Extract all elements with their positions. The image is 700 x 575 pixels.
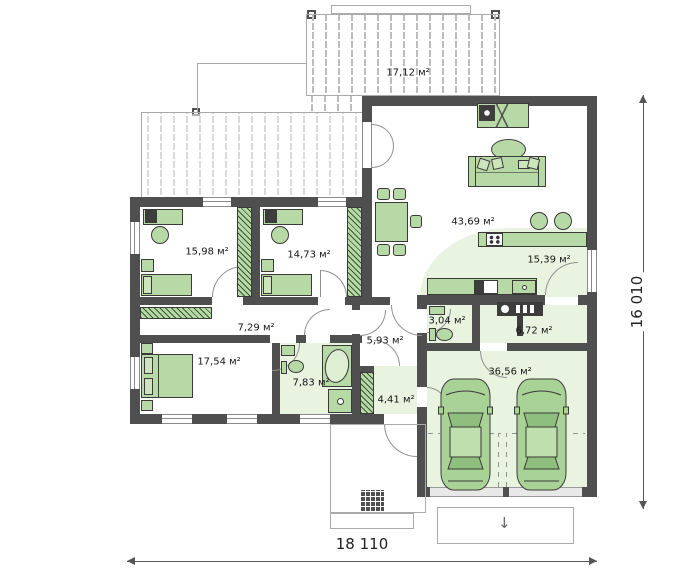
wall [362,207,372,297]
door-swing [372,124,394,146]
door-swing [320,270,347,297]
terrace-edge-line [197,63,198,113]
sofa-pillow [491,157,504,170]
sink [429,306,445,315]
chair [377,188,390,200]
window [130,222,140,254]
pillow [143,276,152,294]
door-swing [391,305,422,336]
porch-step [330,513,414,529]
parking-dash [498,433,499,487]
chair [410,215,422,228]
sofa-seat-line [476,172,538,173]
wall [140,335,270,343]
wardrobe [360,372,374,414]
wall [345,297,390,305]
terrace-bridge-decking [306,96,362,113]
terrace-top-decking [307,15,499,95]
pillow [144,378,153,395]
room-label-entry: 4,41 м² [378,395,415,406]
bed-line [158,355,159,397]
toilet-bowl [288,360,304,373]
bar-stool [530,212,548,230]
window [318,197,346,207]
window [162,414,192,424]
wall [472,305,480,343]
toilet-tank [429,328,436,341]
chair [377,244,390,256]
bar-stool [554,212,572,230]
faucet-dot [522,285,527,290]
window [130,357,140,389]
door-swing [304,309,330,335]
door-swing [360,310,386,336]
wardrobe [140,307,212,319]
wardrobe [237,207,252,297]
dimension-arrow [639,501,647,509]
terrace-area-label: 17,12 м² [386,68,429,79]
window [203,197,231,207]
nightstand [261,259,274,272]
door-leaf [320,270,321,297]
dimension-width-label: 18 110 [333,535,392,553]
room-label-bedroom-1: 15,98 м² [185,247,228,258]
room-label-hallway: 7,29 м² [238,323,275,334]
boiler-vent [516,305,520,313]
oven-icon [474,280,498,294]
wall [362,168,372,207]
dimension-arrow [127,557,135,565]
room-label-kitchen: 15,39 м² [527,255,570,266]
room-label-bedroom-3: 17,54 м² [197,357,240,368]
room-label-bathroom: 7,83 м² [293,378,330,389]
nightstand [141,400,153,411]
terrace-door-opening [362,122,372,168]
dimension-height-label: 16 010 [628,273,646,332]
room-label-corridor: 5,93 м² [367,336,404,347]
nightstand [141,343,153,354]
parking-dash [506,433,507,487]
cooktop-icon [486,233,503,246]
wall [352,334,360,414]
wall [578,295,587,305]
wall [140,297,212,305]
toilet-tank [281,361,287,374]
wardrobe [347,207,362,297]
stove-icon [479,105,495,121]
wall [417,343,480,351]
roof-outline [331,5,471,14]
floor-plan: 17,12 м² [0,0,700,575]
wall [296,335,306,343]
chair [271,226,289,244]
computer-icon [145,210,157,223]
parking-dash [573,433,585,434]
wall [417,333,427,387]
room-label-garage: 36,56 м² [488,367,531,378]
driveway-arrow: ↓ [498,514,511,532]
room-label-bedroom-2: 14,73 м² [287,250,330,261]
chair [151,226,169,244]
boiler-dial [501,305,509,313]
terrace-edge-line [197,63,307,64]
car-icon [514,377,569,492]
doormat [361,490,384,511]
shower-drain [337,398,344,405]
boiler-vent [530,305,534,313]
chair [393,188,406,200]
wall [582,487,597,497]
dimension-arrow [589,557,597,565]
window [300,414,330,424]
nightstand [141,259,154,272]
door-swing [372,146,394,168]
window [587,250,597,292]
room-label-living-dining: 43,69 м² [451,217,494,228]
wall [352,305,360,310]
wall [252,207,260,297]
dining-table [375,202,408,242]
car-icon [438,377,493,492]
window [227,414,257,424]
front-door-opening [384,414,417,424]
room-label-wc: 3,04 м² [429,316,466,327]
sink [281,345,295,356]
terrace-side-decking [142,113,362,197]
computer-icon [265,210,277,223]
pillow [144,357,153,374]
dimension-line-bottom [127,561,597,562]
wall [587,96,597,497]
boiler-vent [523,305,527,313]
pillow [263,276,272,294]
dimension-arrow [639,95,647,103]
toilet-bowl [436,328,453,341]
chair [393,244,406,256]
wall [243,297,318,305]
wall [507,343,597,351]
room-label-utility: 6,72 м² [516,326,553,337]
